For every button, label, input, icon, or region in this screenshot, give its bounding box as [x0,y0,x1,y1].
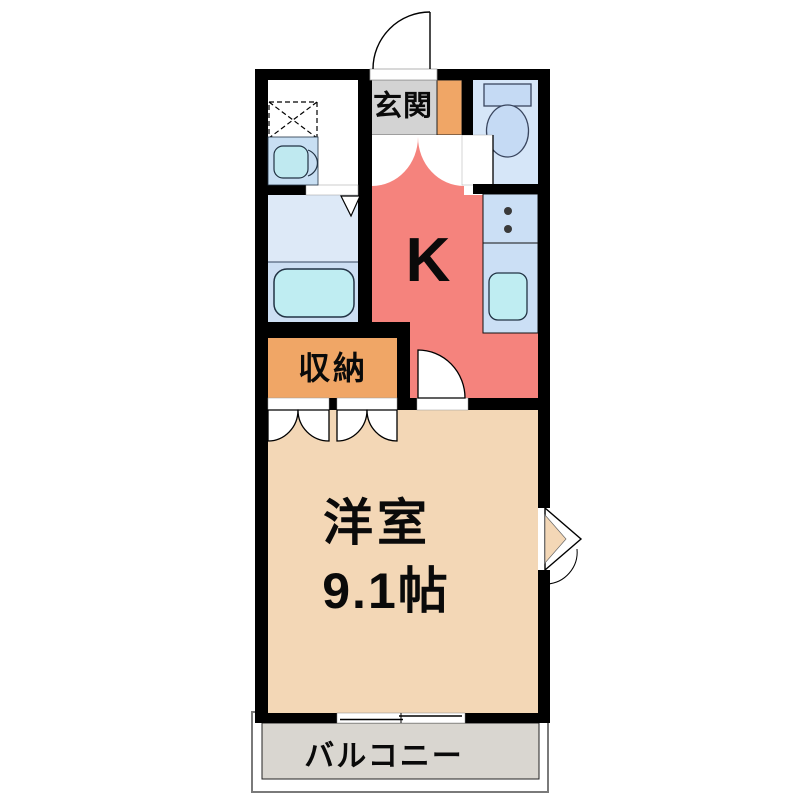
wall-top-left [255,69,370,80]
western-room-label: 洋室 [323,498,431,548]
kitchen-label: K [406,230,451,292]
toilet-tank [484,84,531,106]
stove-burner-dot [504,207,512,215]
wall-right-upper [538,80,550,508]
washing-machine-space [269,102,317,138]
wall-toilet-bottom [473,184,538,194]
wall-kitchen-room-right [468,398,538,410]
western-room-floor [268,410,538,713]
wall-kitchen-room-left [397,398,417,410]
western-room-size: 9.1帖 [322,566,450,616]
wall-washroom-bottom [255,185,306,195]
wall-top-right [437,69,550,80]
wall-right-lower [538,570,550,723]
wall-closet-mullion [329,398,337,410]
entrance-label: 玄関 [373,93,433,122]
stove-burner-dot [504,225,512,233]
closet-opening-left [268,398,329,410]
washbasin-bowl [274,146,308,178]
entrance-threshold [370,69,437,80]
bathroom-floor-upper [268,195,358,262]
bathtub [274,269,354,317]
wall-left [255,80,268,723]
wall-storage-right [397,322,410,410]
floorplan: 玄関 K 収納 洋室 9.1帖 バルコニー [0,0,800,800]
toilet-door [462,135,493,185]
wall-bathroom-bottom [255,322,397,338]
entrance-door-swing [373,12,430,69]
shoe-cabinet [437,80,462,135]
wall-washroom-right [358,80,372,322]
storage-label: 収納 [298,352,368,384]
kitchen-door-threshold [417,398,468,410]
balcony-label: バルコニー [304,742,463,772]
kitchen-sink [489,273,527,320]
closet-opening-right [337,398,397,410]
wall-toilet-left [462,80,473,135]
bathroom-door-threshold [306,185,358,195]
